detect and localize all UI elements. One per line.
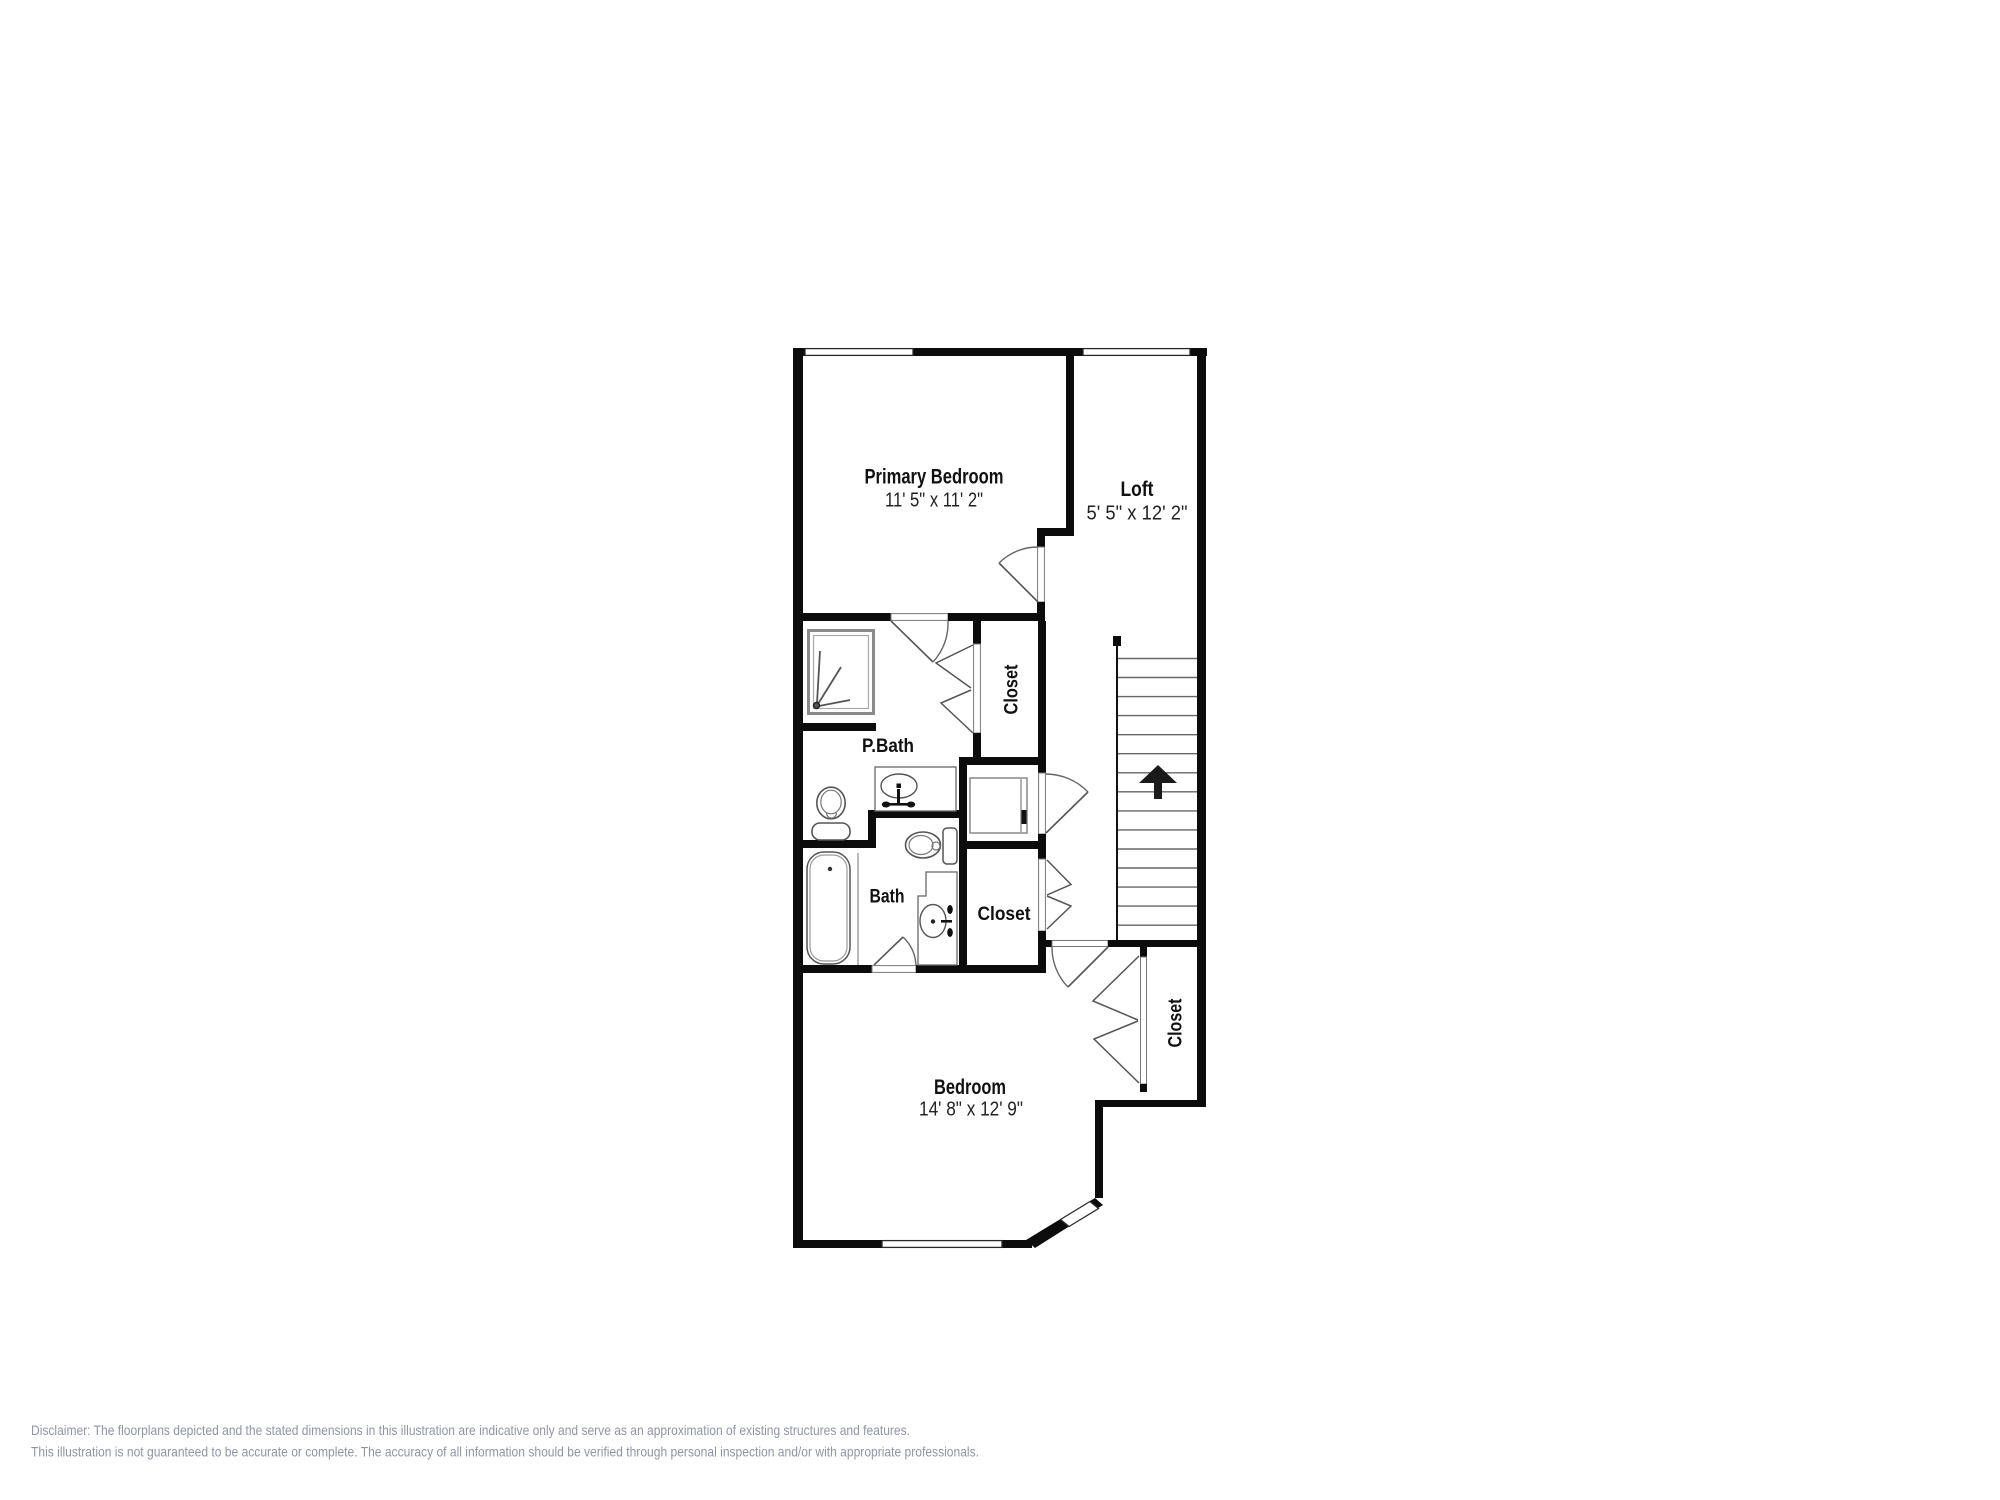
- svg-text:Closet: Closet: [1166, 998, 1187, 1048]
- svg-text:Primary Bedroom: Primary Bedroom: [865, 466, 1004, 489]
- svg-text:Closet: Closet: [978, 904, 1032, 925]
- svg-text:P.Bath: P.Bath: [862, 736, 914, 757]
- svg-text:Closet: Closet: [1002, 664, 1023, 715]
- svg-text:Loft: Loft: [1121, 478, 1154, 501]
- svg-text:Bedroom: Bedroom: [934, 1076, 1006, 1099]
- svg-text:This illustration is not guara: This illustration is not guaranteed to b…: [31, 1444, 979, 1460]
- svg-text:Disclaimer: The floorplans dep: Disclaimer: The floorplans depicted and …: [31, 1422, 910, 1438]
- svg-text:Bath: Bath: [870, 887, 905, 908]
- svg-text:11' 5" x 11' 2": 11' 5" x 11' 2": [885, 490, 983, 512]
- svg-text:14' 8" x 12' 9": 14' 8" x 12' 9": [919, 1099, 1023, 1121]
- svg-text:5' 5" x 12' 2": 5' 5" x 12' 2": [1087, 503, 1188, 525]
